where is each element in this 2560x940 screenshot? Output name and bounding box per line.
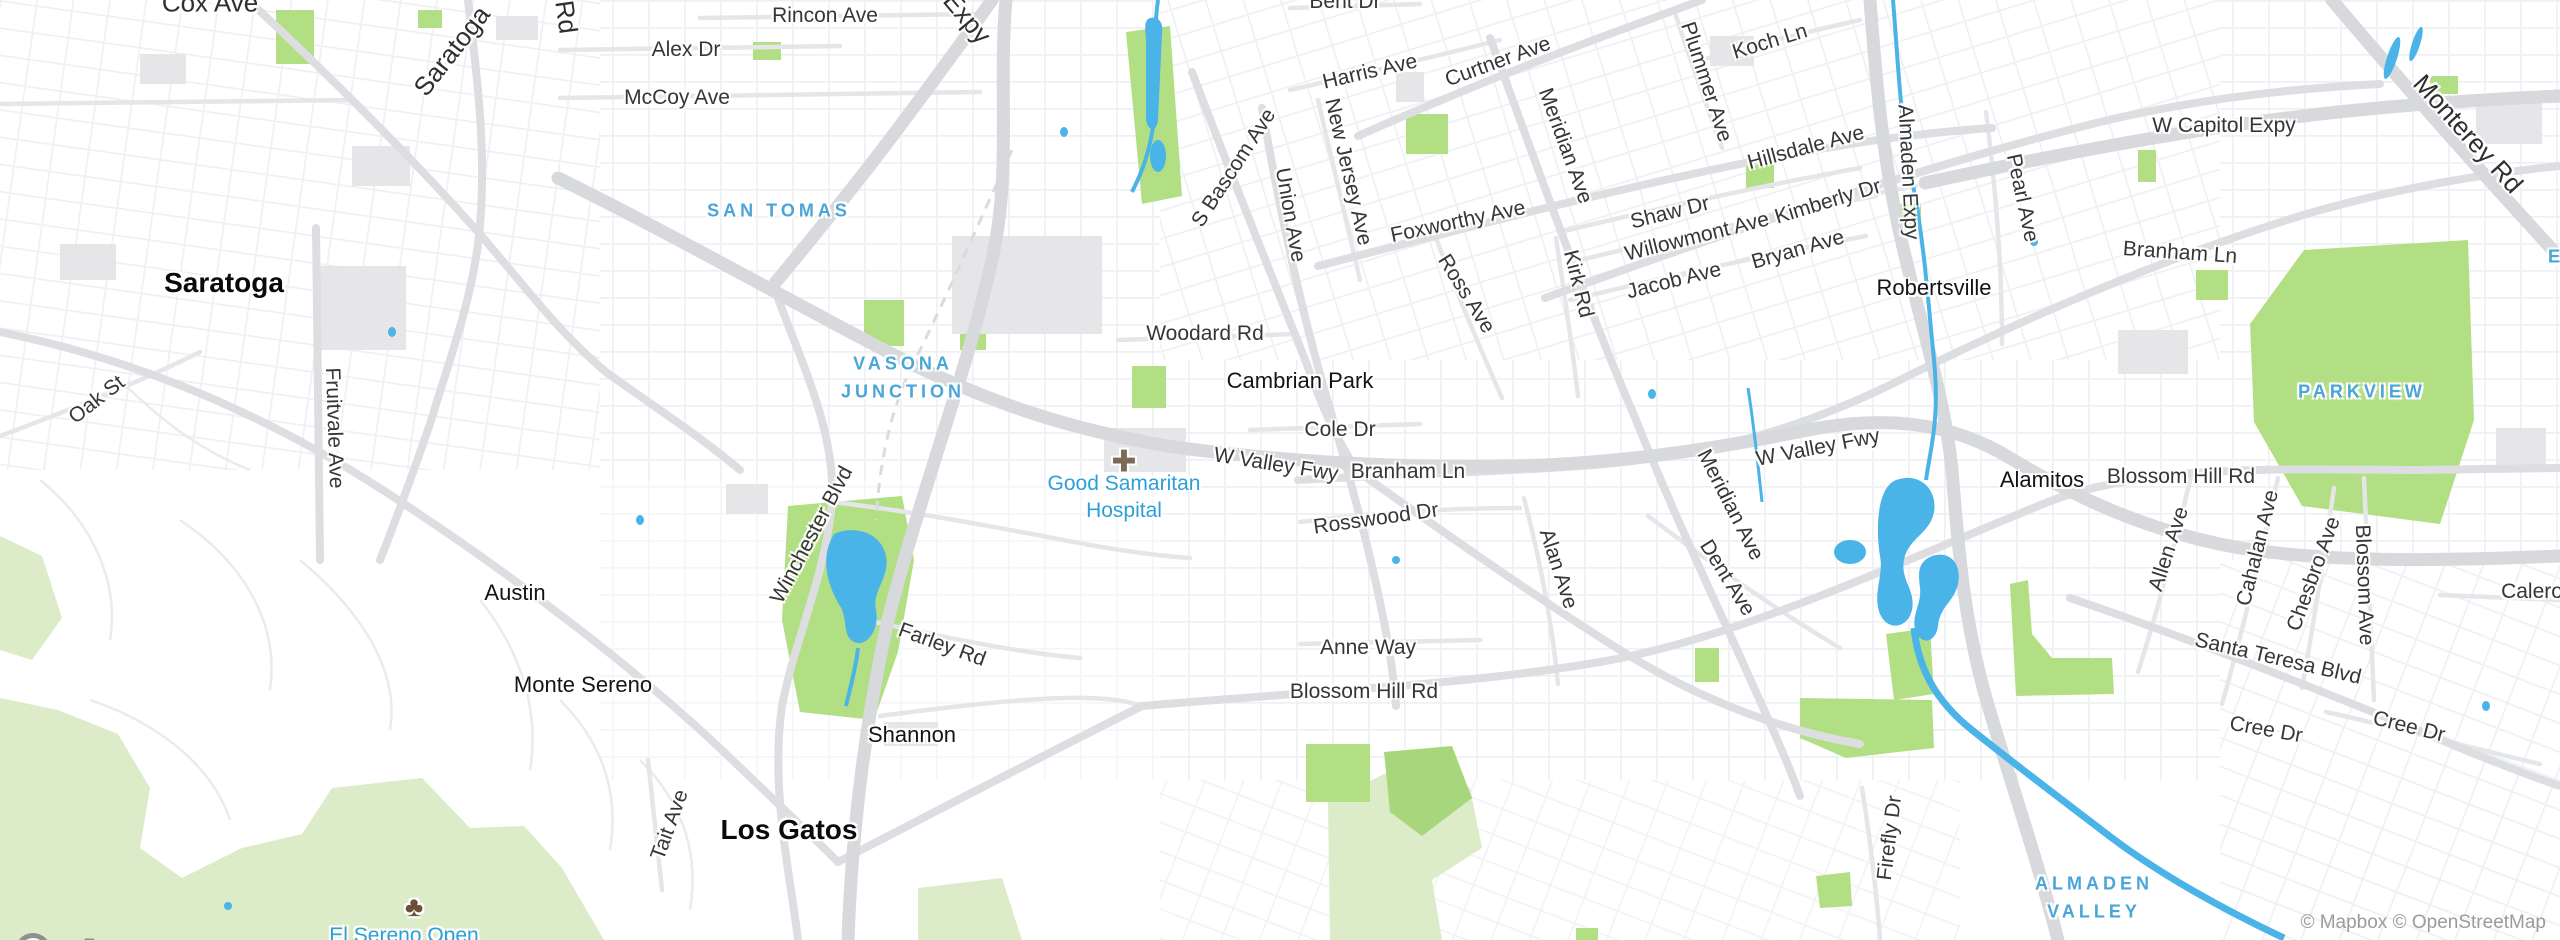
- map-viewport[interactable]: Cox AveSaratogaRdRincon AveAlex DrMcCoy …: [0, 0, 2560, 940]
- mapbox-wordmark: mapbox: [14, 932, 164, 940]
- mapbox-wordmark-text: mapbox: [14, 935, 147, 940]
- map-attribution[interactable]: © Mapbox © OpenStreetMap: [2300, 912, 2546, 934]
- map-canvas: [0, 0, 2560, 940]
